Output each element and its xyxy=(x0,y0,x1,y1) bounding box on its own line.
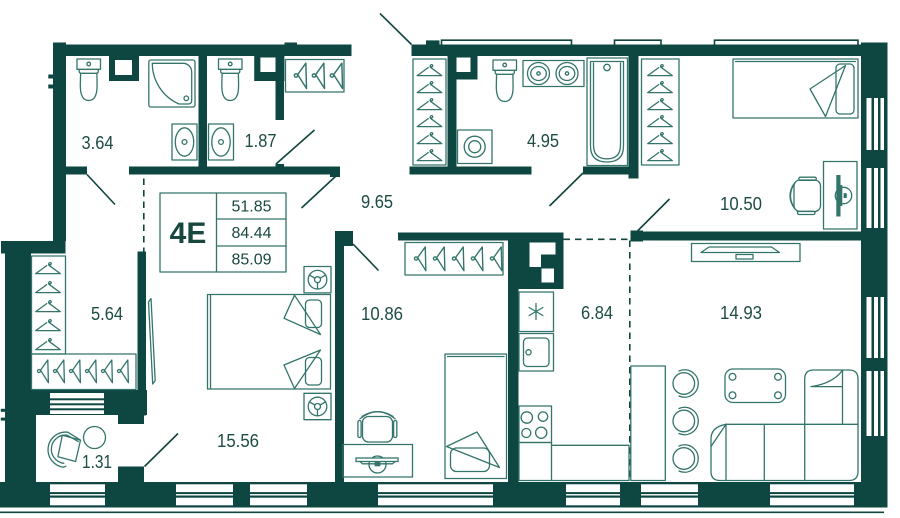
svg-text:10.50: 10.50 xyxy=(720,194,762,214)
svg-text:5.64: 5.64 xyxy=(91,304,123,324)
svg-text:84.44: 84.44 xyxy=(232,225,272,242)
svg-text:1.31: 1.31 xyxy=(82,452,112,472)
svg-text:4.95: 4.95 xyxy=(527,131,559,151)
svg-text:6.84: 6.84 xyxy=(581,303,613,323)
svg-text:9.65: 9.65 xyxy=(361,192,393,212)
svg-text:10.86: 10.86 xyxy=(361,304,403,324)
svg-text:1.87: 1.87 xyxy=(245,131,277,151)
svg-text:51.85: 51.85 xyxy=(232,199,272,216)
svg-text:15.56: 15.56 xyxy=(217,431,259,451)
svg-text:3.64: 3.64 xyxy=(82,133,114,153)
svg-text:85.09: 85.09 xyxy=(232,252,272,269)
svg-text:14.93: 14.93 xyxy=(720,303,762,323)
svg-text:4E: 4E xyxy=(170,217,207,250)
